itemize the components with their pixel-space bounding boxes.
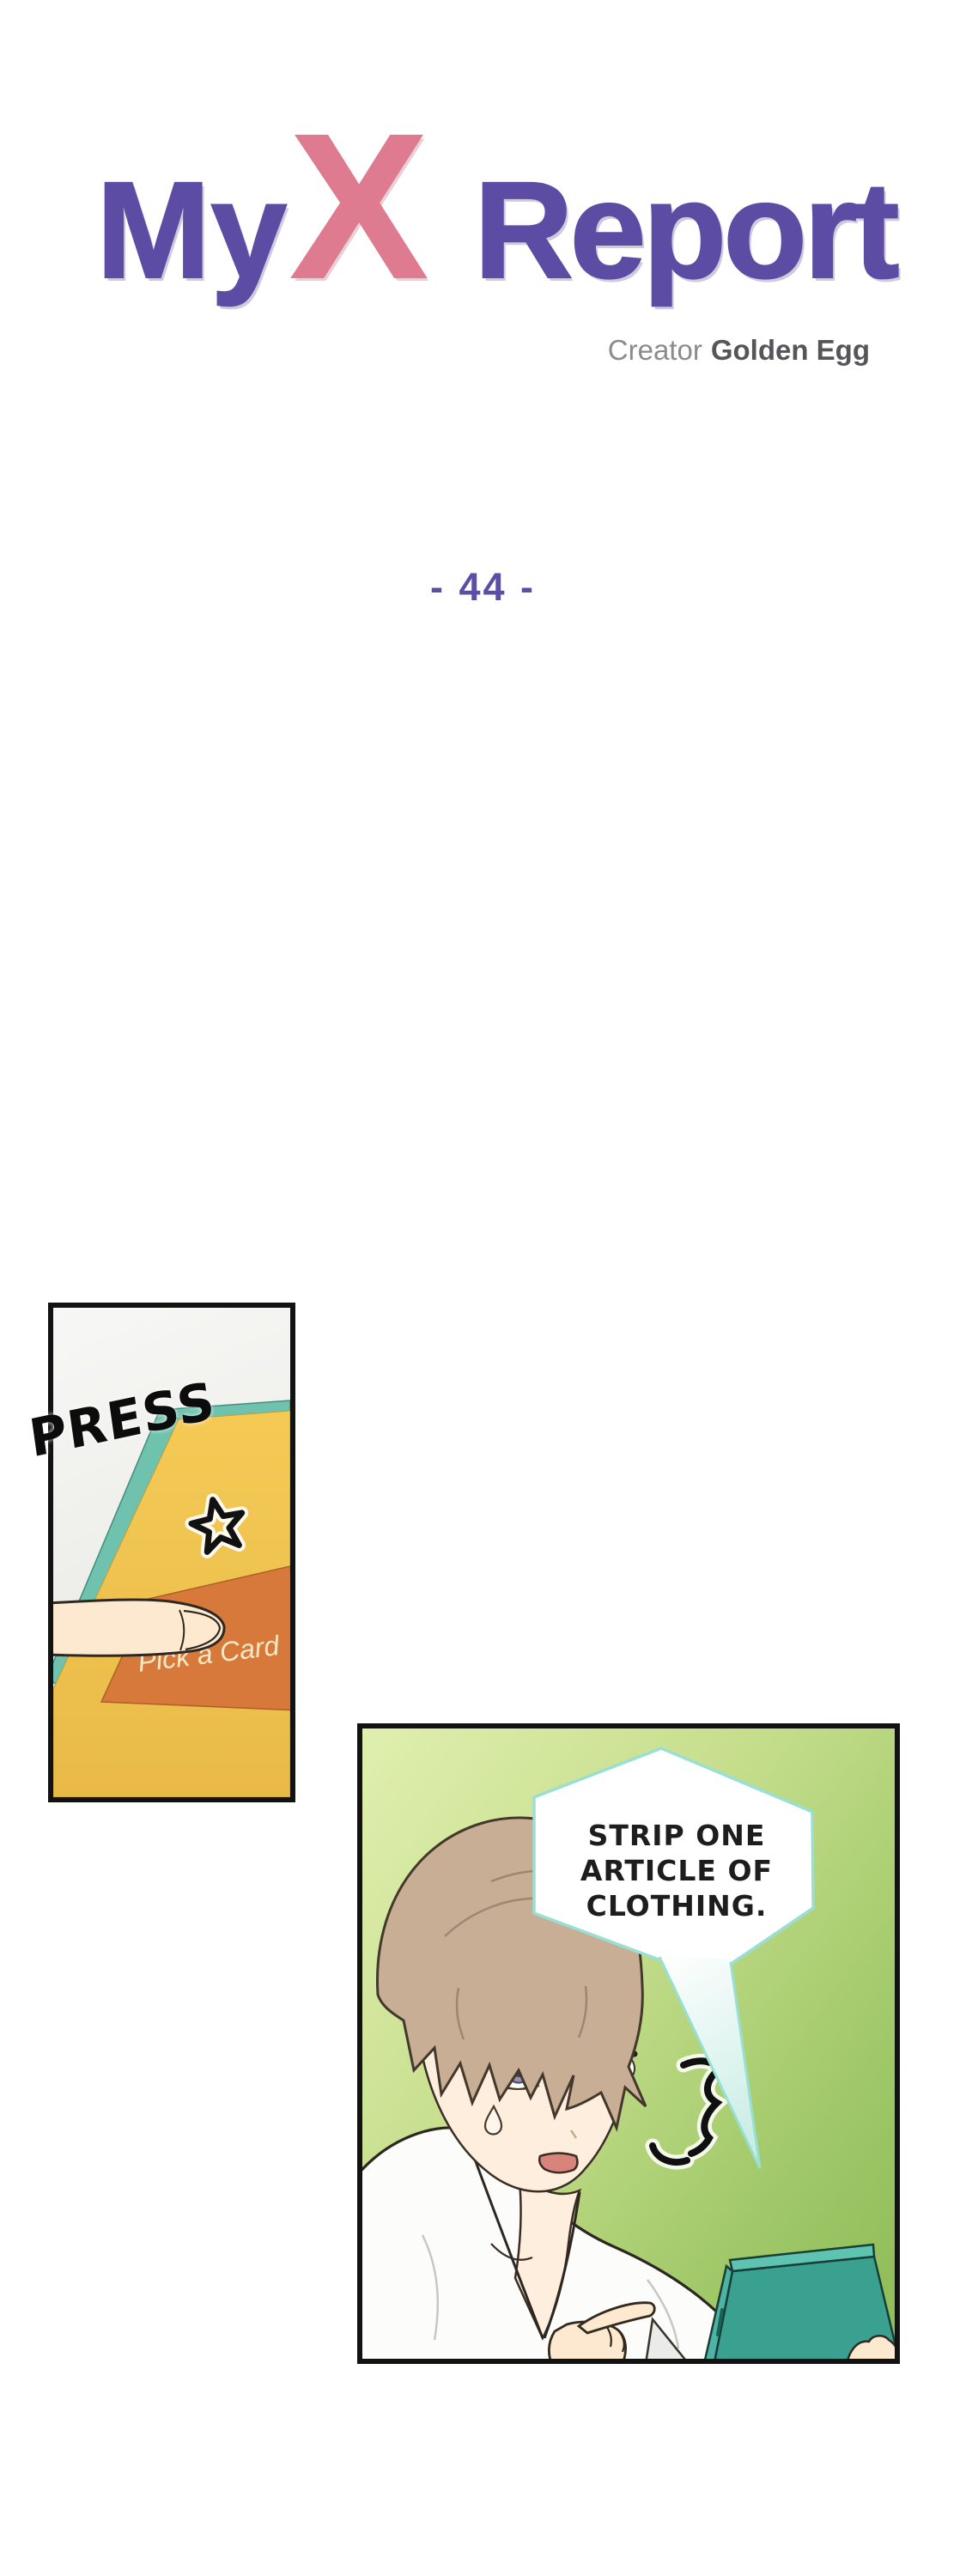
- mouth: [539, 2154, 577, 2173]
- comic-panel-press: Pick a Card: [48, 1303, 295, 1802]
- creator-label: Creator: [608, 334, 702, 366]
- creator-line: CreatorGolden Egg: [608, 333, 870, 368]
- webtoon-reader-page: My X Report CreatorGolden Egg - 44 -: [0, 0, 966, 2576]
- creator-name: Golden Egg: [711, 334, 870, 366]
- title-word-report: Report: [474, 161, 896, 299]
- speech-bubble-text: STRIP ONE ARTICLE OF CLOTHING.: [548, 1818, 805, 1923]
- finger-illustration: [53, 1600, 224, 1656]
- title-letter-x: X: [290, 103, 428, 309]
- title-word-my: My: [96, 161, 287, 299]
- comic-panel-reaction: STRIP ONE ARTICLE OF CLOTHING.: [357, 1723, 900, 2364]
- chapter-number: - 44 -: [0, 565, 966, 610]
